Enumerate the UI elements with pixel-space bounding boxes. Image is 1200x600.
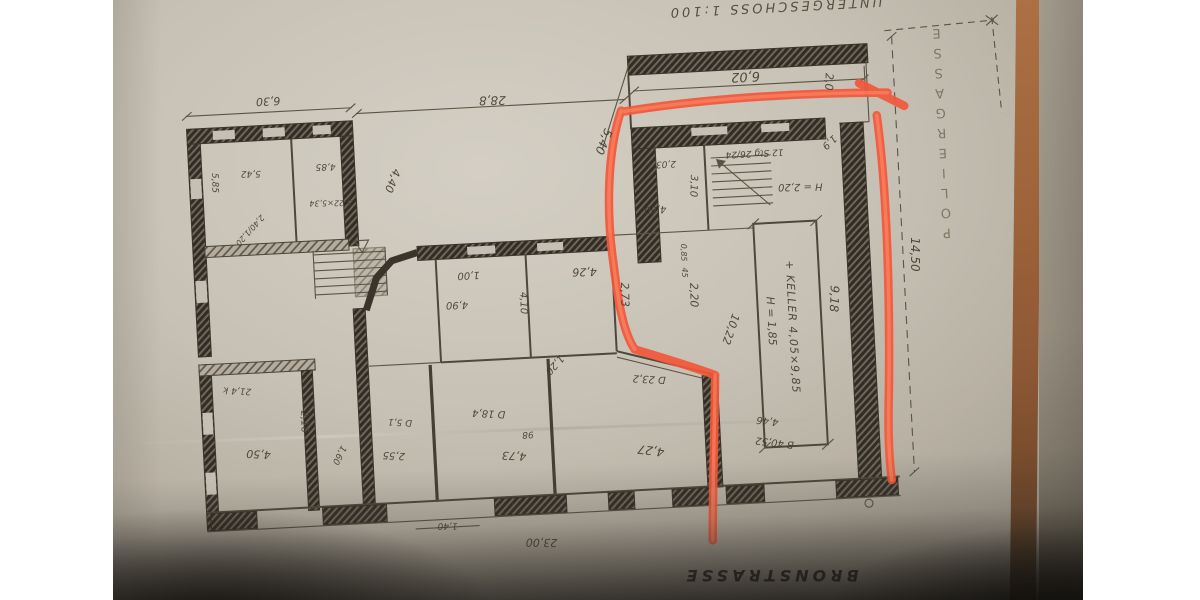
dimension-label: 2,03 xyxy=(656,158,677,169)
dimension-label: 2,0 xyxy=(822,73,836,91)
dimension-label: 5,85 xyxy=(209,173,219,193)
plan-tilt-layer: 6,30 28,8 6,02 2,0 5,40 12 Stg 26/24 1,9… xyxy=(113,0,1083,600)
height-note-label: H = 2,20 xyxy=(778,180,823,192)
dimension-label: 2,55 xyxy=(382,449,405,461)
dimension-label: 4,90 xyxy=(446,299,468,310)
area-label: D 23,2 xyxy=(632,372,666,385)
area-label: 21,4 k xyxy=(223,384,252,395)
dimension-label: 6,30 xyxy=(256,94,281,108)
dimension-label: 0,85 xyxy=(679,244,688,262)
floor-plan-photo: 6,30 28,8 6,02 2,0 5,40 12 Stg 26/24 1,9… xyxy=(113,0,1083,600)
dimension-label: 4,50 xyxy=(246,447,271,461)
dimension-label: 6,02 xyxy=(731,68,761,84)
dimension-label: 98 xyxy=(522,429,534,440)
area-label: D 5,1 xyxy=(388,416,413,427)
dimension-label: 9,18 xyxy=(827,285,842,312)
dimension-label: 3,10 xyxy=(687,175,699,198)
dimension-label: 1,40 xyxy=(437,520,457,530)
dimension-lines xyxy=(884,15,1022,476)
dimension-label: 23,00 xyxy=(526,536,558,550)
dimension-label: 4,26 xyxy=(572,265,597,278)
dimension-label: 4,85 xyxy=(316,161,336,171)
left-building xyxy=(182,104,378,532)
dimension-label: 45 xyxy=(680,267,689,277)
room-size-label: 5,22×5,34 xyxy=(309,198,351,208)
dimension-label: 4,60 xyxy=(644,203,667,215)
page-background: 6,30 28,8 6,02 2,0 5,40 12 Stg 26/24 1,9… xyxy=(0,0,1200,600)
area-label: D 18,4 xyxy=(472,407,506,420)
dimension-label: 2,16 xyxy=(298,410,309,432)
room-height-label: H = 1,85 xyxy=(764,296,780,346)
dimension-label: 5,42 xyxy=(241,168,261,178)
dimension-label: 4,73 xyxy=(501,449,526,463)
staircase-right xyxy=(711,155,774,208)
dimension-label: 1,00 xyxy=(457,269,480,281)
dimension-label: 28,8 xyxy=(479,93,506,107)
dimension-label: 2,73 xyxy=(618,282,631,307)
dimension-label: 14,50 xyxy=(908,237,922,271)
street-name-bottom: BRONSTRASSE xyxy=(683,566,859,585)
dimension-label: 2,20 xyxy=(687,283,700,308)
middle-building xyxy=(343,95,650,506)
dimension-label: 4,10 xyxy=(517,292,528,314)
